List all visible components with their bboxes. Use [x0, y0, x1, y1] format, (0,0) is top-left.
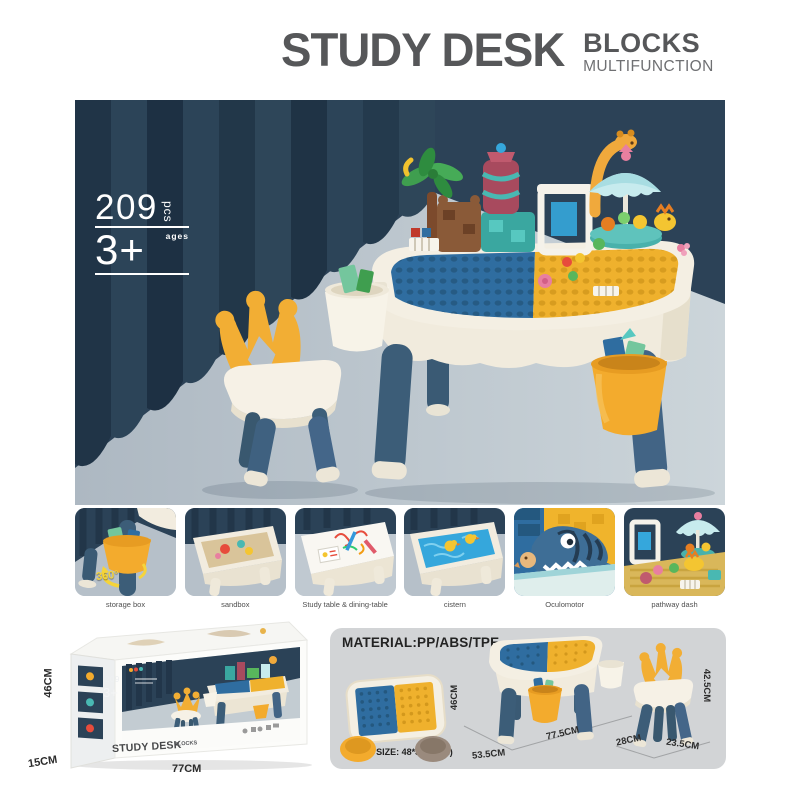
box-height-label: 46CM — [43, 668, 55, 697]
panel-top-view — [336, 670, 458, 766]
product-poster: STUDY DESK BLOCKS MULTIFUNCTION — [0, 0, 800, 800]
chair-shadow — [202, 481, 358, 499]
box-depth-label: 15CM — [27, 754, 58, 770]
feature-caption: storage box — [75, 600, 176, 609]
oculomotor-scene — [514, 508, 615, 596]
pieces-row: 209 pcs — [95, 192, 189, 228]
pathway-dash-thumb — [624, 508, 725, 596]
pieces-unit: pcs — [161, 201, 175, 223]
blocks-label: BLOCKS — [583, 29, 714, 57]
page-title: STUDY DESK — [281, 24, 564, 76]
header: STUDY DESK BLOCKS MULTIFUNCTION — [281, 24, 714, 76]
feature-caption: Oculomotor — [514, 600, 615, 609]
age-value: 3+ — [95, 226, 145, 273]
study-table-scene — [295, 508, 396, 596]
feature-storage-box: 360° storage box — [75, 508, 176, 609]
hero-scene-illustration — [75, 100, 725, 505]
feature-caption: Study table & dining-table — [295, 600, 396, 609]
cistern-thumb — [404, 508, 505, 596]
box-side-thumbnails — [78, 665, 103, 739]
feature-study-table: Study table & dining-table — [295, 508, 396, 609]
pieces-count: 209 — [95, 192, 158, 224]
multifunction-label: MULTIFUNCTION — [583, 58, 714, 76]
study-table-thumb — [295, 508, 396, 596]
feature-oculomotor: Oculomotor — [514, 508, 615, 609]
sandbox-scene — [185, 508, 286, 596]
piece-count-block: 209 pcs ages 3+ — [95, 192, 189, 275]
feature-thumbnails: 360° storage box sandbox — [75, 508, 725, 609]
pathway-dash-scene — [624, 508, 725, 596]
feature-pathway-dash: pathway dash — [624, 508, 725, 609]
package-box-illustration — [57, 618, 322, 773]
package-box-figure: 209 3+ STUDY DESK BLOCKS 46CM 15CM 77CM — [20, 615, 340, 790]
ages-label: ages — [166, 231, 189, 241]
feature-caption: pathway dash — [624, 600, 725, 609]
rotate-360-badge: 360° — [95, 569, 119, 583]
storage-box-thumb: 360° — [75, 508, 176, 596]
storage-box-scene — [75, 508, 176, 596]
hero-photo: 209 pcs ages 3+ — [75, 100, 725, 505]
box-face-age: 3+ — [103, 685, 118, 700]
table-dimension-diagram — [456, 634, 634, 766]
feature-sandbox: sandbox — [185, 508, 286, 609]
feature-caption: sandbox — [185, 600, 286, 609]
feature-caption: cistern — [404, 600, 505, 609]
box-face-pieces: 209 — [105, 675, 120, 684]
spec-panel: MATERIAL:PP/ABS/TPE PANEL SIZE: 48*33.5(… — [330, 628, 726, 769]
header-right: BLOCKS MULTIFUNCTION — [583, 24, 714, 76]
oculomotor-thumb — [514, 508, 615, 596]
chair-height-label: 42.5CM — [701, 669, 712, 702]
age-row: ages 3+ — [95, 228, 189, 275]
sandbox-thumb — [185, 508, 286, 596]
table-height-label: 46CM — [449, 685, 460, 710]
box-width-label: 77CM — [172, 763, 201, 775]
feature-cistern: cistern — [404, 508, 505, 609]
cistern-scene — [404, 508, 505, 596]
